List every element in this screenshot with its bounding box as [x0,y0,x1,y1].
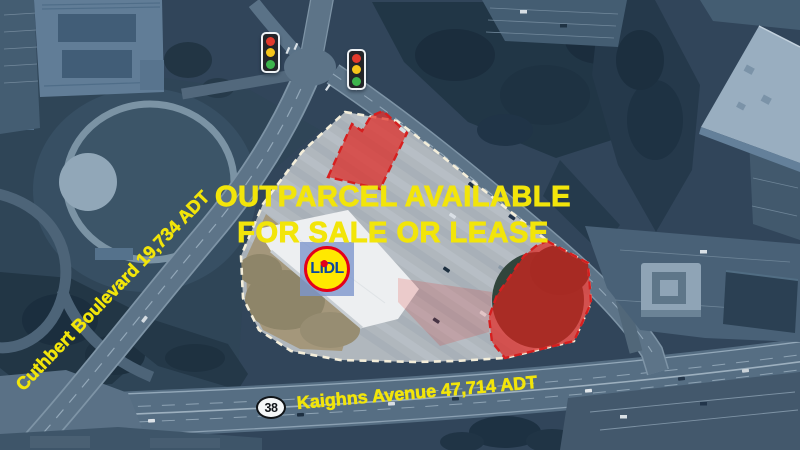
headline-line1: OUTPARCEL AVAILABLE [183,179,603,215]
restaurant-building [641,263,701,317]
traffic-light-icon [347,49,366,90]
headline: OUTPARCEL AVAILABLE FOR SALE OR LEASE [183,179,603,251]
red-light [352,54,361,63]
green-light [266,60,275,69]
aerial-marketing-map: LiDL OUTPARCEL AVAILABLE FOR SALE OR LEA… [0,0,800,450]
green-light [352,77,361,86]
headline-line2: FOR SALE OR LEASE [183,215,603,251]
lidl-logo-circle: LiDL [304,246,350,292]
amber-light [352,65,361,74]
route-shield-icon: 38 [256,396,286,419]
amber-light [266,48,275,57]
red-light [266,37,275,46]
dark-roof-building [723,271,798,333]
route-number: 38 [265,401,278,415]
traffic-light-icon [261,32,280,73]
school-building [34,0,164,97]
